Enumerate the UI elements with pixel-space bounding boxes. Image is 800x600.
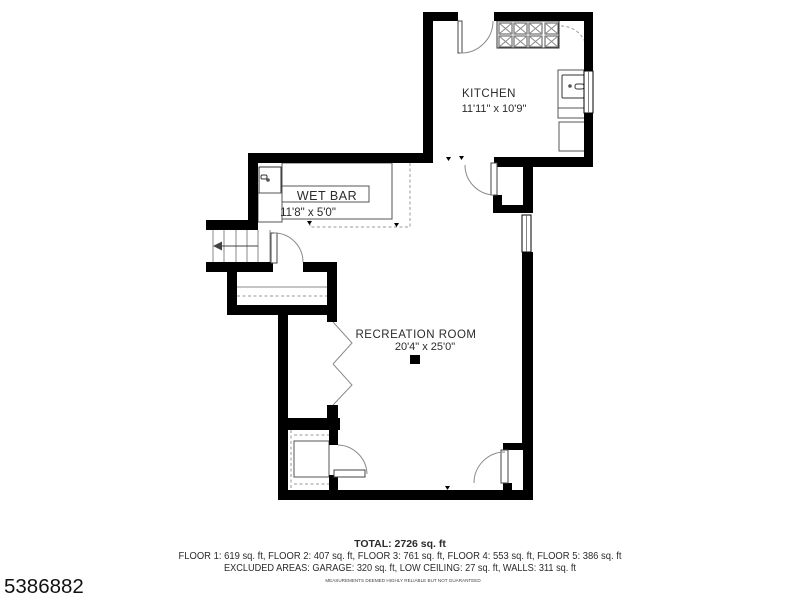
area-summary: TOTAL: 2726 sq. ft FLOOR 1: 619 sq. ft, …: [179, 538, 622, 583]
kitchen-label: KITCHEN: [462, 88, 516, 100]
counter-dashed-corner: [561, 26, 587, 52]
excluded-areas: EXCLUDED AREAS: GARAGE: 320 sq. ft, LOW …: [224, 562, 576, 574]
listing-id: 5386882: [4, 575, 84, 598]
floor-areas: FLOOR 1: 619 sq. ft, FLOOR 2: 407 sq. ft…: [179, 550, 622, 562]
wetbar-cabinet: [258, 193, 282, 222]
bifold-doors-icon: [333, 322, 352, 405]
wetbar-sink-icon: [259, 167, 281, 193]
window-kitchen: [584, 71, 593, 113]
floorplan-page: KITCHEN 11'11" x 10'9" WET BAR 11'8" x 5…: [0, 0, 800, 600]
total-area: TOTAL: 2726 sq. ft: [354, 538, 446, 550]
closet-rod-shelf: [237, 287, 327, 296]
recreation-room-dimensions: 20'4" x 25'0": [395, 341, 455, 353]
door-kitchen-entry: [458, 21, 493, 53]
floorplan-canvas: KITCHEN 11'11" x 10'9" WET BAR 11'8" x 5…: [0, 0, 800, 600]
wetbar-label: WET BAR: [297, 189, 357, 203]
kitchen-sink-icon: [558, 70, 586, 118]
stove-icon: [497, 21, 559, 48]
door-stair-hall: [271, 233, 303, 263]
kitchen-fixtures: [497, 21, 587, 151]
window-recreation: [522, 215, 531, 252]
kitchen-dimensions: 11'11" x 10'9": [462, 103, 527, 115]
kitchen-cabinet: [559, 122, 585, 151]
wetbar-dimensions: 11'8" x 5'0": [280, 207, 336, 219]
stairs: [213, 230, 270, 262]
door-kitchen-to-recreation: [465, 163, 497, 195]
recreation-room-label: RECREATION ROOM: [355, 329, 476, 341]
support-post: [410, 355, 420, 364]
walls: [206, 12, 593, 500]
door-recreation-bottom: [474, 450, 508, 483]
utility-closet-shelves: [291, 430, 329, 490]
door-utility-closet: [334, 445, 367, 477]
disclaimer: MEASUREMENTS DEEMED HIGHLY RELIABLE BUT …: [325, 578, 481, 583]
